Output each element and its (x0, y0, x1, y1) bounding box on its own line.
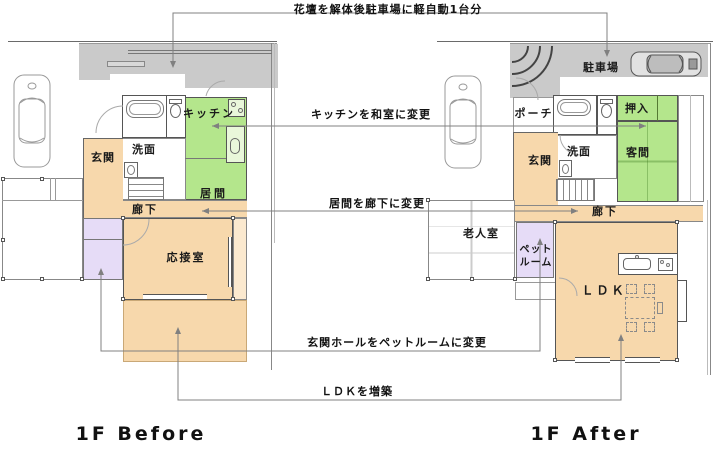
arrow-up-icon (98, 268, 104, 275)
before-label-reception: 応接室 (167, 249, 206, 265)
annotation-living-change: 居間を廊下に変更 (329, 195, 425, 211)
after-label-porch: ポーチ (515, 105, 554, 121)
before-title: 1F Before (76, 423, 207, 445)
after-porch-door-arc (516, 78, 538, 100)
after-label-guest: 客間 (626, 144, 650, 160)
after-label-ldk: ＬＤＫ (581, 282, 626, 299)
before-label-corridor: 廊下 (132, 201, 158, 217)
arrow-right-icon (639, 123, 646, 129)
before-label-washroom: 洗面 (132, 141, 156, 157)
before-reception-door-arc (123, 219, 149, 245)
arrow-up-icon (618, 334, 624, 341)
after-label-pet-line2: ルーム (520, 254, 553, 269)
after-label-parking: 駐車場 (583, 59, 619, 75)
annotation-ldk-extend: ＬＤＫを増築 (321, 383, 393, 399)
floorplan-canvas: 玄関 洗面 キッチン 居間 廊下 応接室 (0, 0, 720, 452)
arrow-down-icon (604, 50, 610, 57)
annotation-flowerbed: 花壇を解体後駐車場に軽自動1台分 (294, 1, 483, 17)
after-label-washroom: 洗面 (567, 143, 591, 159)
annotation-hall-change: 玄関ホールをペットルームに変更 (307, 334, 487, 350)
after-label-elderly: 老人室 (463, 225, 499, 241)
arrow-left-icon (202, 208, 209, 214)
after-label-closet: 押入 (625, 100, 649, 116)
before-label-entrance: 玄関 (91, 149, 115, 165)
before-label-kitchen: キッチン (183, 105, 235, 121)
annotation-kitchen-change: キッチンを和室に変更 (311, 106, 431, 122)
after-title: 1F After (530, 423, 641, 445)
arrow-up-icon (175, 327, 181, 334)
before-kitchen-door-arc (206, 81, 225, 96)
arrow-left-icon (212, 123, 219, 129)
before-entrance-door-arc (96, 106, 123, 133)
before-label-living: 居間 (200, 185, 228, 201)
arrow-down-icon (170, 61, 176, 68)
after-label-corridor: 廊下 (592, 203, 618, 219)
after-ldk-door-arc (559, 278, 577, 296)
arrow-right-icon (571, 208, 578, 214)
after-label-entrance: 玄関 (528, 152, 552, 168)
leader-flowerbed (173, 13, 607, 62)
